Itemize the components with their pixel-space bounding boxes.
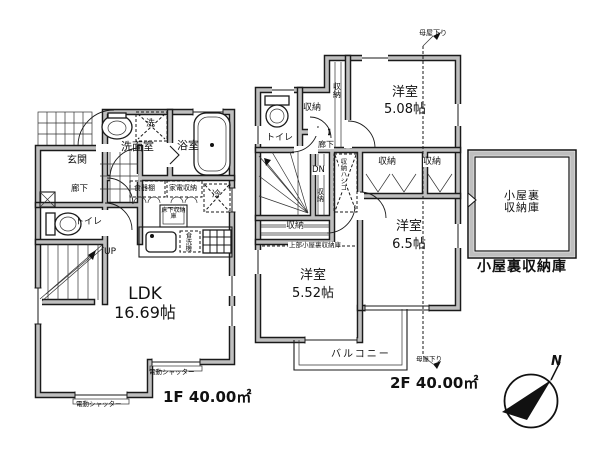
room-label-washroom: 洗面室: [121, 141, 154, 153]
bathtub-icon: [194, 113, 230, 175]
attic-inside-line1: 小屋裏: [479, 190, 565, 202]
room-label-bathroom: 浴室: [177, 140, 199, 152]
room-size-se: 6.5帖: [364, 238, 454, 252]
room-label-ldk: LDK: [85, 286, 205, 304]
closet-strip-shelves: [335, 62, 341, 148]
toilet-2f-icon: [265, 96, 289, 127]
area-label-1f: 1F 40.00㎡: [163, 390, 251, 406]
floorplan-canvas: 玄関 廊下 トイレ 洗面室 浴室 洗 食器棚 家電収納 冷 床下収納庫 食洗機 …: [0, 0, 603, 475]
room-label-toilet-2f: トイレ: [266, 134, 293, 143]
label-cupboard: 食器棚: [134, 185, 155, 192]
room-label-ne: 洋室: [360, 86, 450, 100]
roofline-dashed: [423, 32, 441, 369]
label-ladder: 収納ハシゴ: [339, 158, 346, 191]
label-stairs-down: DN: [312, 166, 325, 175]
label-fridge: 冷: [212, 191, 221, 200]
label-appliance-storage: 家電収納: [169, 185, 197, 192]
room-label-genkan: 玄関: [67, 156, 87, 167]
floor1-porch-tiles: [38, 112, 92, 146]
attic-inside-label: 小屋裏 収納庫: [479, 190, 565, 213]
attic-caption: 小屋裏収納庫: [477, 260, 567, 275]
closet-mid-shelves: [318, 154, 324, 216]
label-shutter-right: 電動シャッター: [149, 369, 195, 376]
label-dishwasher: 食洗機: [184, 232, 191, 252]
compass-icon: [502, 362, 560, 428]
label-washer: 洗: [146, 120, 155, 129]
stairs-down: [259, 152, 308, 216]
label-closet-right-a: 収納: [378, 158, 396, 167]
room-size-ne: 5.08帖: [360, 103, 450, 117]
label-shutter-bottom: 電動シャッター: [76, 401, 122, 408]
room-label-toilet-1f: トイレ: [75, 218, 102, 227]
label-balcony: バルコニー: [331, 350, 391, 361]
room-size-ldk: 16.69帖: [85, 305, 205, 322]
label-roof-note-top: 母屋下り: [419, 30, 447, 37]
label-underfloor-storage: 床下収納庫: [161, 208, 186, 221]
label-closet-mid: 収納: [316, 188, 323, 202]
room-label-sw: 洋室: [268, 269, 358, 283]
label-stairs-up: UP: [104, 248, 116, 257]
label-attic-above: 上部小屋裏収納庫: [288, 242, 342, 249]
room-label-hallway-1f: 廊下: [71, 185, 88, 194]
attic-inside-line2: 収納庫: [479, 202, 565, 214]
room-size-sw: 5.52帖: [268, 287, 358, 301]
label-closet-right-b: 収納: [423, 158, 441, 167]
compass-north-label: N: [551, 355, 562, 369]
closet-folding-doors: [366, 174, 452, 192]
room-label-se: 洋室: [364, 220, 454, 234]
label-roof-note-bottom: 母屋下り: [416, 356, 442, 363]
room-label-hallway-2f: 廊下: [318, 141, 334, 149]
label-closet-under-stairs: 収納: [286, 222, 304, 231]
label-closet-strip: 収納: [332, 82, 340, 98]
area-label-2f: 2F 40.00㎡: [390, 376, 478, 392]
label-closet-hall: 収納: [303, 104, 321, 113]
